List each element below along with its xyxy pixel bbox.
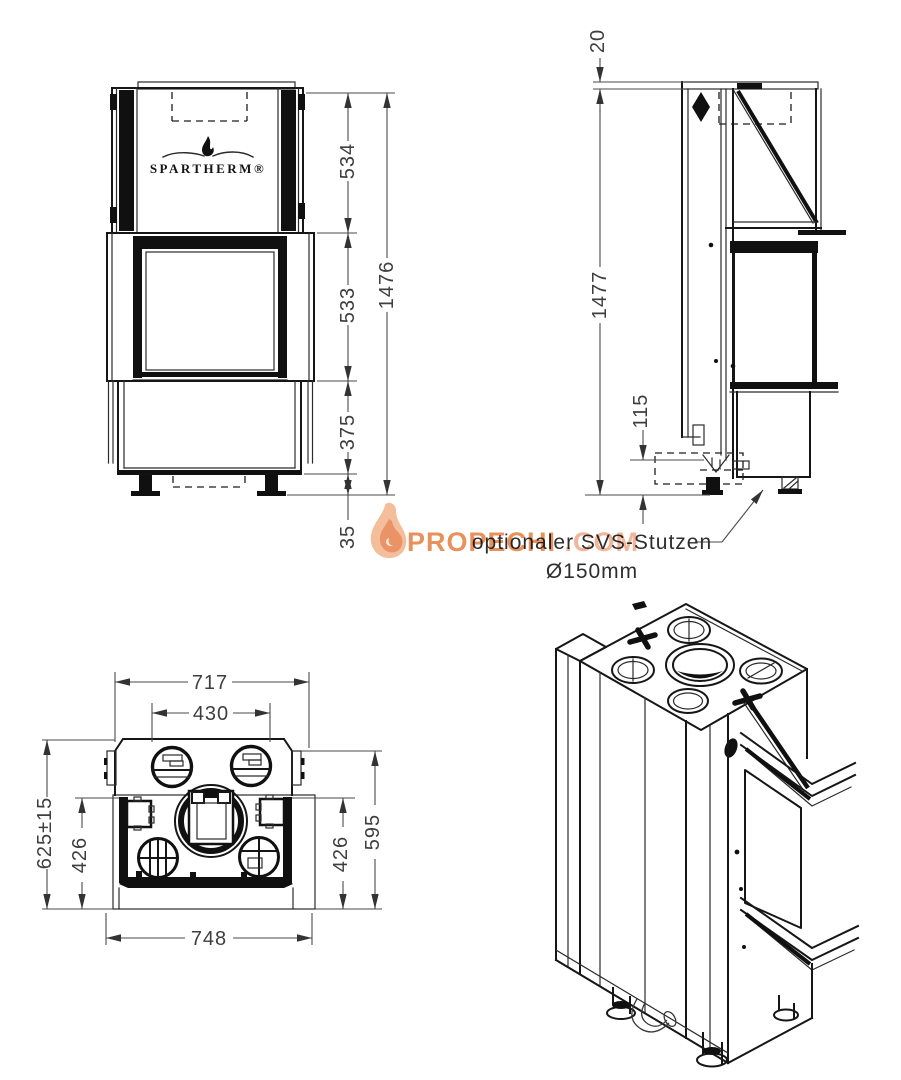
dimension-label: 430 — [193, 703, 229, 725]
dimension-label: 533 — [337, 287, 359, 323]
drawing-page: SPARTHERM® — [0, 0, 901, 1080]
dim-top-depth-left: 426 — [69, 798, 93, 909]
dim-front-upper: 534 — [337, 93, 359, 233]
air-duct-right — [232, 747, 271, 786]
watermark-site-name: PROPECHI — [407, 527, 556, 557]
watermark-text: PROPECHI .COM — [407, 527, 639, 557]
bracket-left — [127, 797, 154, 830]
flame-icon — [202, 136, 214, 156]
convection-duct-left — [139, 839, 178, 878]
dim-top-depth-right: 426 — [330, 798, 354, 909]
spartherm-logo: SPARTHERM® — [150, 136, 266, 176]
dim-top-depth-overall: 625±15 — [34, 740, 58, 909]
front-feet — [131, 475, 286, 496]
iso-pipe-sketch — [632, 999, 678, 1032]
dimension-label: 717 — [192, 672, 228, 694]
dim-front-middle: 533 — [337, 233, 359, 381]
front-view: SPARTHERM® — [107, 82, 398, 549]
technical-drawing: SPARTHERM® — [0, 0, 901, 1080]
watermark: PROPECHI .COM — [371, 503, 639, 558]
iso-view — [556, 601, 858, 1067]
top-view: 717 430 625±15 426 426 59 — [34, 672, 386, 950]
svs-stub-dashed — [655, 453, 743, 484]
air-duct-left — [153, 748, 192, 787]
dim-top-inner-width: 430 — [152, 703, 270, 725]
handle-detail — [692, 92, 710, 122]
dim-side-total: 1477 — [589, 110, 611, 495]
dimension-label: 426 — [69, 837, 91, 873]
dim-side-top: 20 — [587, 29, 609, 113]
dim-top-width: 717 — [115, 672, 309, 694]
dimension-label: 35 — [337, 525, 359, 549]
dim-top-base-width: 748 — [106, 928, 312, 950]
flue-outline-dashed — [172, 92, 247, 121]
dim-front-lower: 375 — [337, 381, 359, 474]
side-feet — [702, 477, 802, 495]
bracket-right — [256, 795, 284, 828]
dimension-label: 595 — [362, 814, 384, 850]
watermark-flame-icon — [371, 503, 406, 558]
dimension-label: 115 — [630, 394, 652, 429]
brand-logo-text: SPARTHERM® — [150, 161, 266, 176]
side-view: 20 1477 115 optionaler SVS-Stutzen Ø150m… — [472, 29, 846, 583]
dimension-label: 1477 — [589, 271, 611, 320]
dimension-label: 20 — [587, 29, 609, 53]
flue-opening — [175, 785, 247, 857]
iso-lower-shelf — [741, 898, 858, 1018]
dimension-label: 748 — [191, 928, 227, 950]
iso-feet — [607, 988, 798, 1067]
dim-side-stub: 115 — [630, 394, 652, 524]
dimension-label: 426 — [330, 836, 352, 872]
dim-front-total: 1476 — [376, 93, 398, 495]
dimension-label: 534 — [337, 143, 359, 179]
dim-front-feet: 35 — [337, 474, 359, 549]
dimension-label: 1476 — [376, 261, 398, 310]
dim-top-depth-outer: 595 — [362, 751, 386, 909]
dimension-label: 375 — [337, 414, 359, 450]
convection-duct-right — [240, 838, 279, 877]
watermark-site-tld: .COM — [565, 527, 640, 557]
optional-stub-diameter: Ø150mm — [546, 560, 638, 583]
dimension-label: 625±15 — [34, 797, 56, 870]
